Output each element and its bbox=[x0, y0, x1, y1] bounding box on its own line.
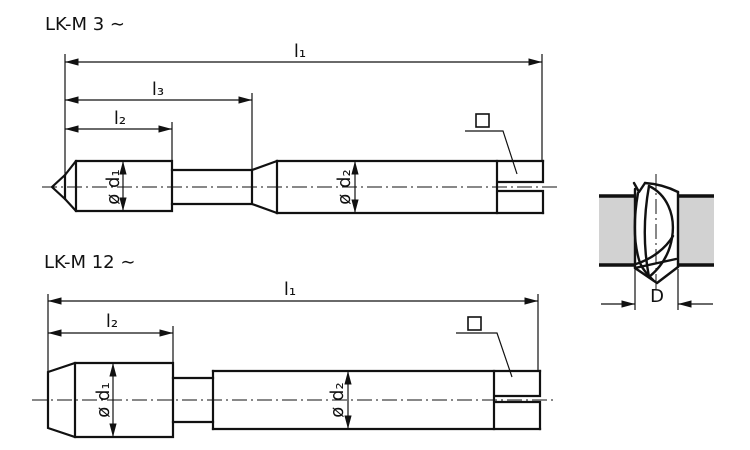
figure-lkm3: LK-M 3 ∼ l₁ l₃ l₂ ø d₁ ø d₂ bbox=[42, 14, 560, 213]
tap-dimension-diagram: LK-M 3 ∼ l₁ l₃ l₂ ø d₁ ø d₂ LK-M 12 ∼ bbox=[0, 0, 750, 450]
square-drive-leader bbox=[465, 131, 517, 174]
square-drive-symbol-icon bbox=[476, 114, 489, 127]
plate-right bbox=[678, 196, 714, 265]
plate-left bbox=[599, 196, 635, 265]
dim-label-D: D bbox=[650, 286, 664, 307]
dim-label-d1: ø d₁ bbox=[93, 382, 114, 417]
dim-label-l1: l₁ bbox=[284, 279, 296, 300]
dim-label-d1: ø d₁ bbox=[103, 169, 124, 204]
drill-flute-inner bbox=[645, 186, 649, 277]
technical-drawing-page: LK-M 3 ∼ l₁ l₃ l₂ ø d₁ ø d₂ LK-M 12 ∼ bbox=[0, 0, 750, 450]
dim-label-l1: l₁ bbox=[294, 41, 306, 62]
dim-label-l2: l₂ bbox=[106, 311, 118, 332]
hole-detail: D bbox=[599, 174, 714, 310]
figure-lkm12-title: LK-M 12 ∼ bbox=[44, 252, 135, 273]
dim-label-d2: ø d₂ bbox=[327, 382, 348, 417]
extension-lines bbox=[65, 54, 542, 175]
dim-label-l3: l₃ bbox=[152, 79, 164, 100]
figure-lkm3-title: LK-M 3 ∼ bbox=[45, 14, 125, 35]
figure-lkm12: LK-M 12 ∼ l₁ l₂ ø d₁ ø d₂ bbox=[32, 252, 556, 437]
dim-label-l2: l₂ bbox=[114, 108, 126, 129]
dim-label-d2: ø d₂ bbox=[334, 169, 355, 204]
square-drive-symbol-icon bbox=[468, 317, 481, 330]
